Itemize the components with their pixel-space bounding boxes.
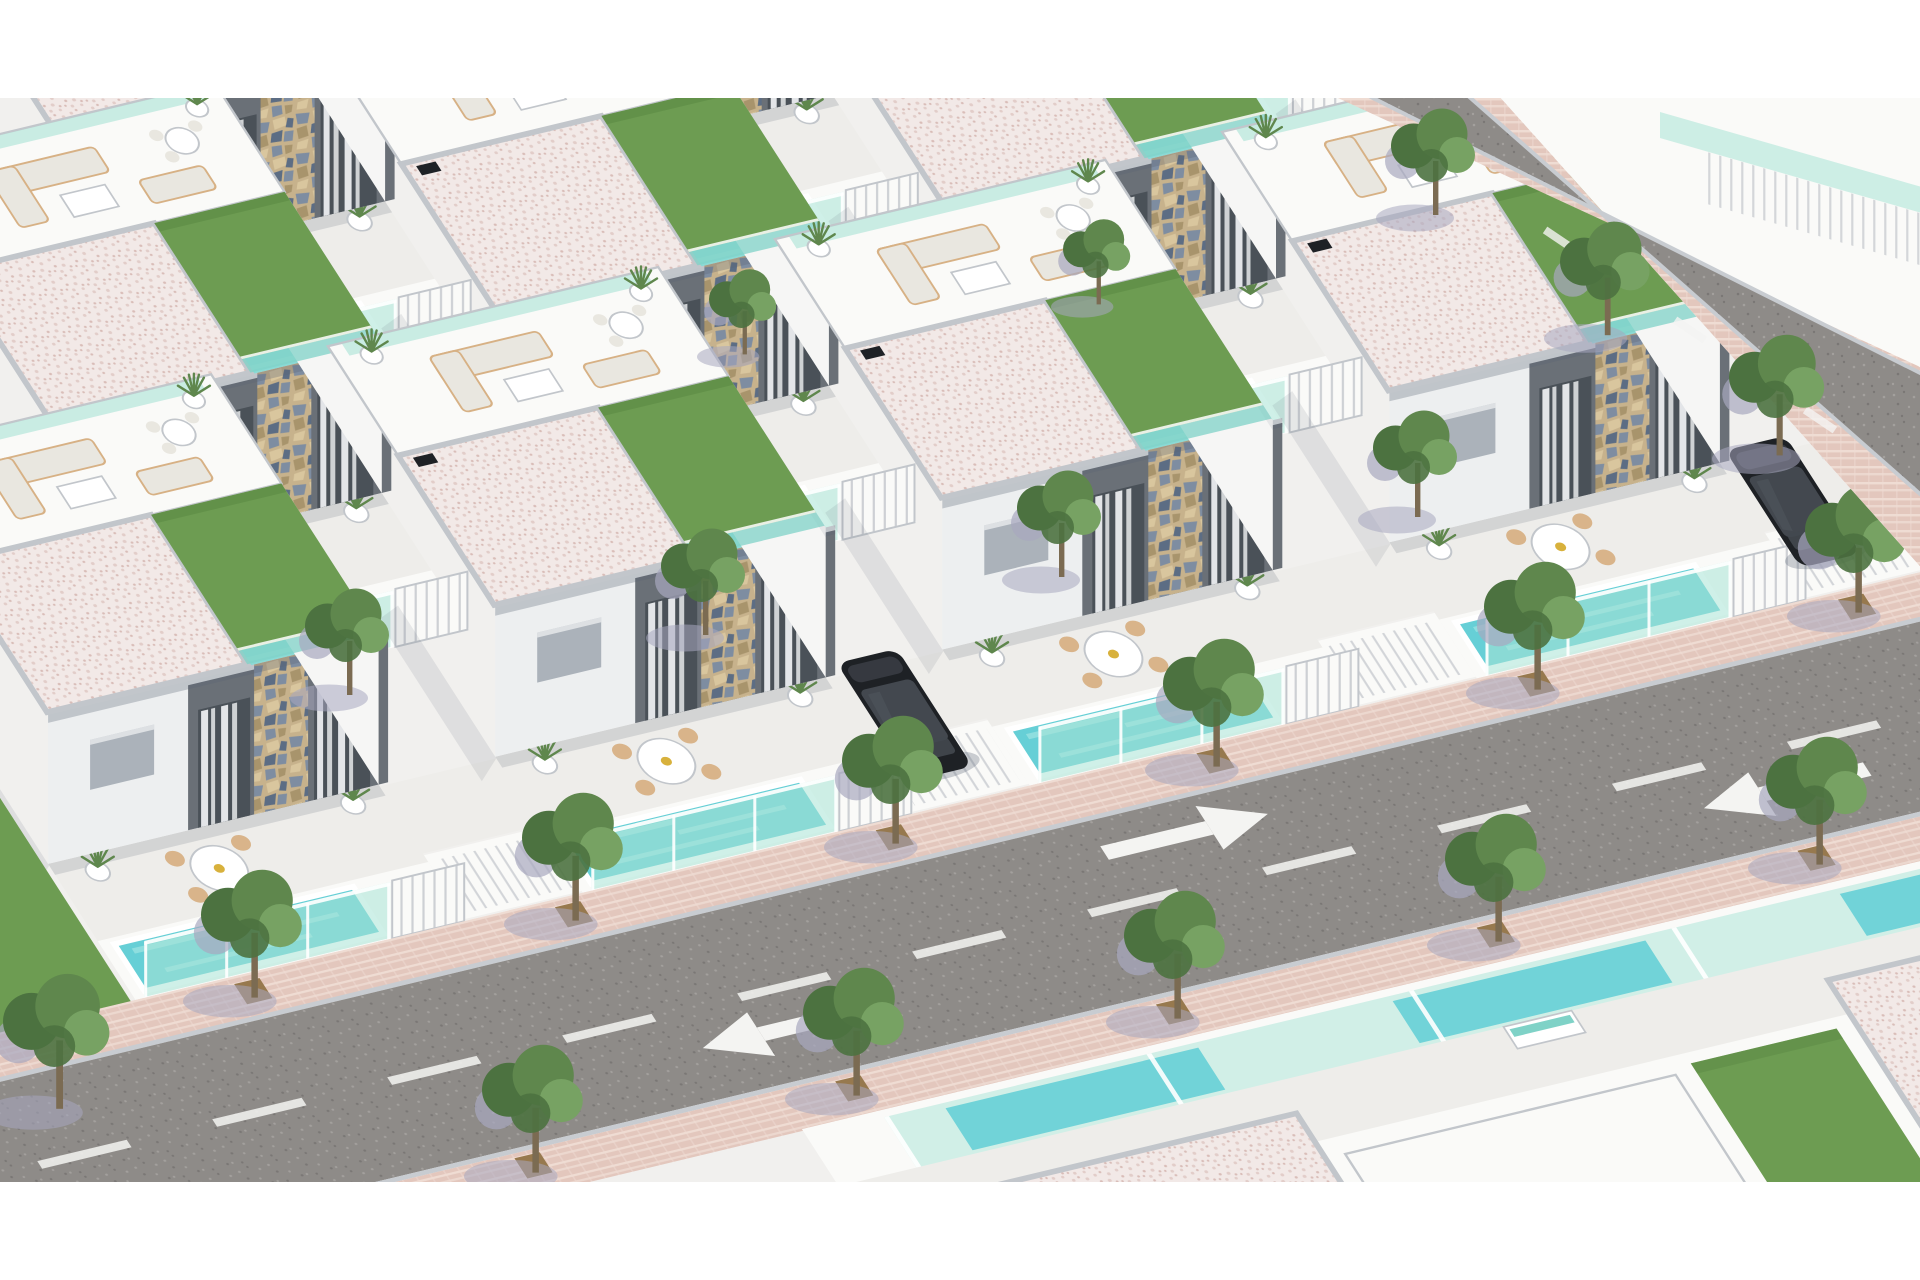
render-canvas (0, 0, 1920, 1280)
render-scene (0, 0, 1920, 1280)
top-margin (0, 0, 1920, 98)
bottom-margin (0, 1182, 1920, 1280)
